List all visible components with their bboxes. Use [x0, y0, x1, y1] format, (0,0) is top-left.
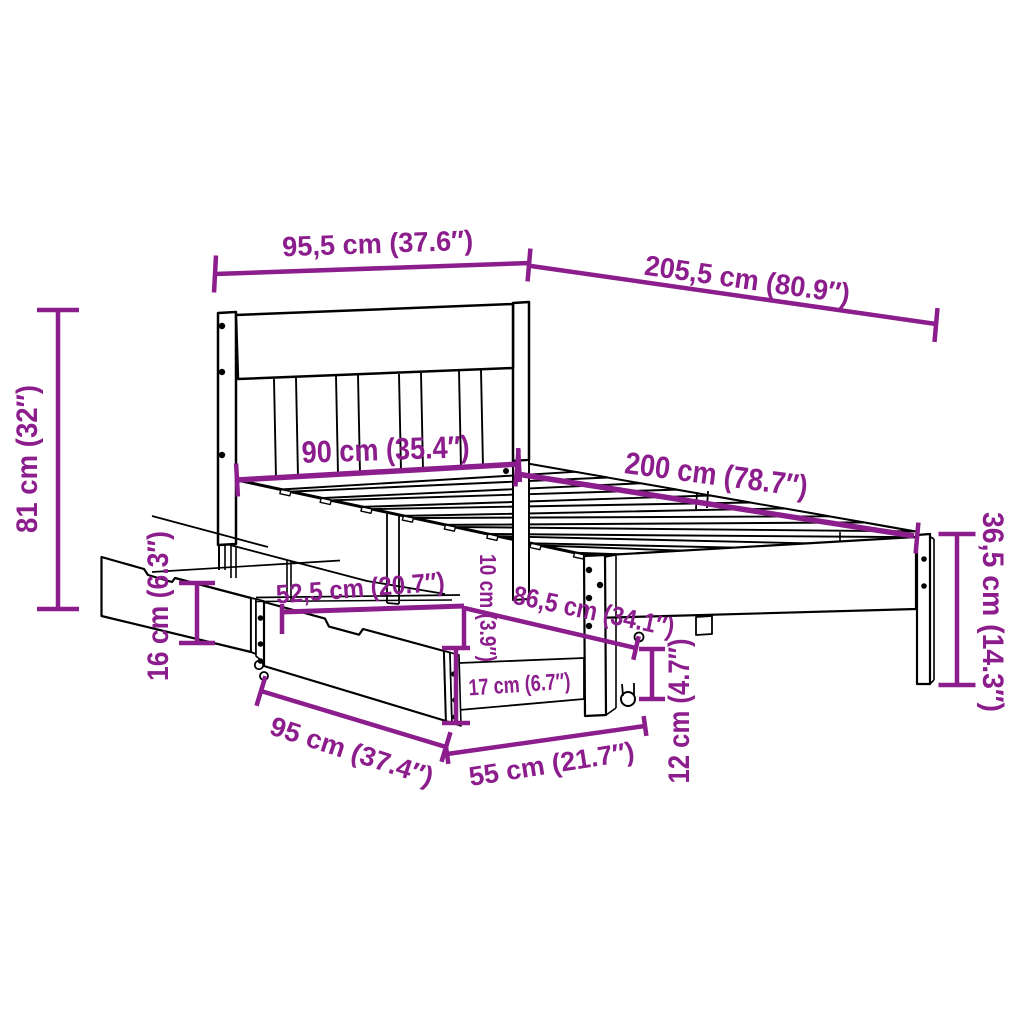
svg-text:16 cm (6.3″): 16 cm (6.3″)	[142, 531, 175, 681]
svg-text:90 cm (35.4″): 90 cm (35.4″)	[301, 429, 470, 470]
svg-text:81 cm (32″): 81 cm (32″)	[11, 385, 44, 533]
svg-text:12 cm (4.7″): 12 cm (4.7″)	[663, 639, 696, 784]
svg-text:36,5 cm (14.3″): 36,5 cm (14.3″)	[976, 512, 1009, 712]
svg-text:10 cm (3.9″): 10 cm (3.9″)	[475, 554, 501, 662]
